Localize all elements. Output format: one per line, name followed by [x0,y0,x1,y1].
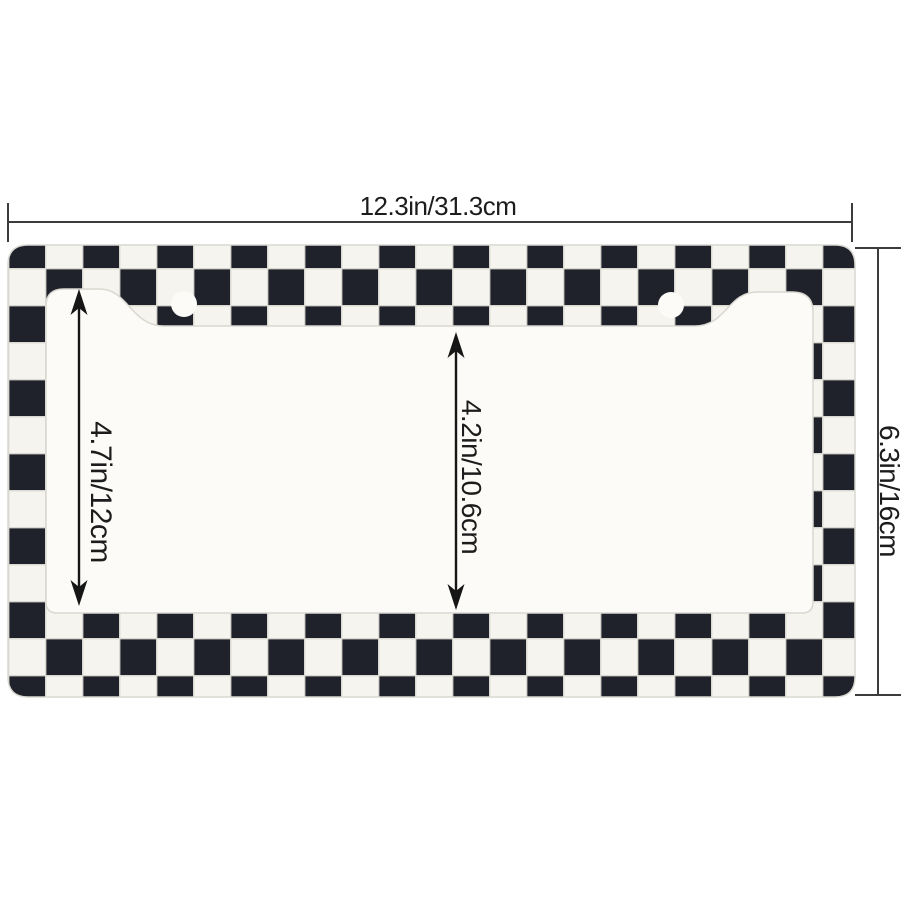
inner-center-height-label: 4.2in/10.6cm [457,400,485,554]
inner-left-height-label: 4.7in/12cm [85,421,115,563]
plate-window [46,289,813,613]
product-dimension-diagram: 12.3in/31.3cm 6.3in/16cm 4.7in/12cm 4.2i… [0,0,901,901]
screw-hole-right [658,292,684,318]
outer-height-label: 6.3in/16cm [875,425,901,557]
screw-hole-left [171,291,197,317]
frame-graphic [0,0,901,901]
outer-width-label: 12.3in/31.3cm [360,193,517,219]
